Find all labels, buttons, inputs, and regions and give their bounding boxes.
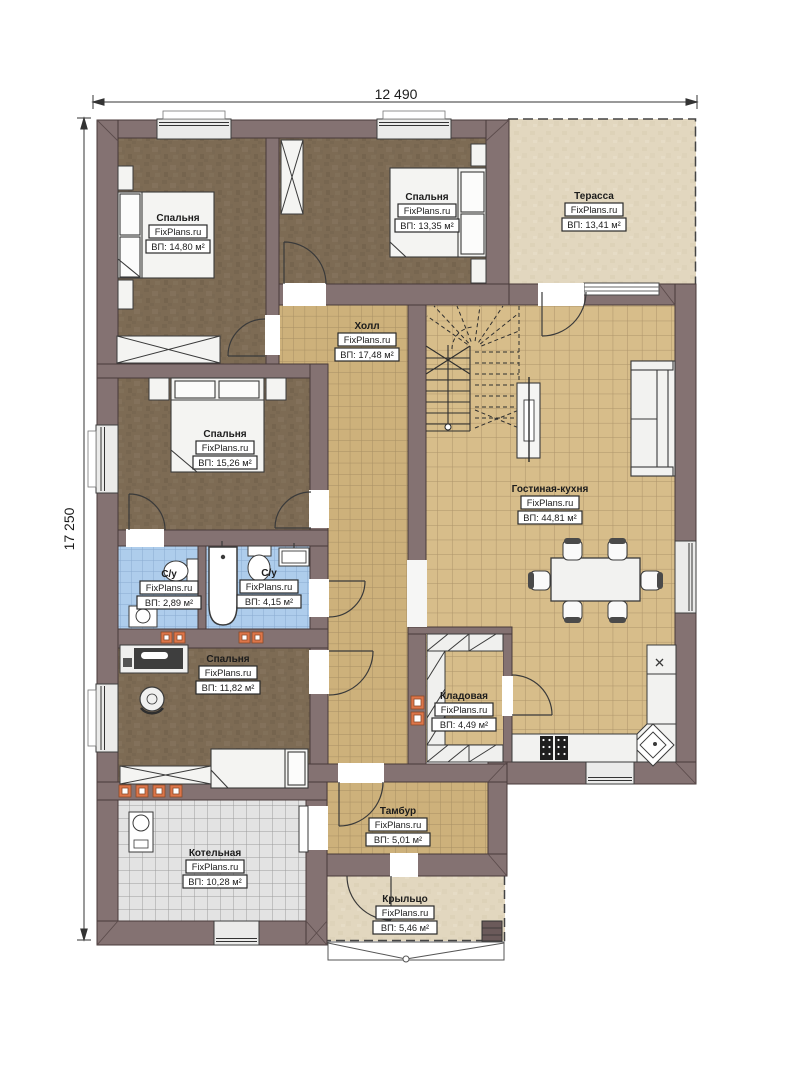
svg-text:17 250: 17 250	[61, 507, 77, 550]
svg-text:FixPlans.ru: FixPlans.ru	[441, 705, 488, 715]
svg-text:FixPlans.ru: FixPlans.ru	[202, 443, 249, 453]
svg-text:Кладовая: Кладовая	[440, 691, 488, 702]
svg-text:Терасса: Терасса	[574, 191, 614, 202]
svg-text:ВП: 13,41 м²: ВП: 13,41 м²	[567, 220, 620, 230]
svg-text:ВП: 4,49 м²: ВП: 4,49 м²	[440, 720, 488, 730]
svg-text:ВП: 15,26 м²: ВП: 15,26 м²	[198, 458, 251, 468]
svg-text:ВП: 44,81 м²: ВП: 44,81 м²	[523, 513, 576, 523]
svg-text:Крыльцо: Крыльцо	[382, 894, 428, 905]
svg-text:FixPlans.ru: FixPlans.ru	[246, 582, 293, 592]
svg-text:FixPlans.ru: FixPlans.ru	[375, 820, 422, 830]
svg-text:Спальня: Спальня	[156, 213, 199, 224]
svg-text:Тамбур: Тамбур	[380, 805, 416, 817]
svg-text:ВП: 4,15 м²: ВП: 4,15 м²	[245, 597, 293, 607]
svg-text:FixPlans.ru: FixPlans.ru	[382, 908, 429, 918]
svg-text:С/у: С/у	[261, 568, 277, 579]
svg-text:FixPlans.ru: FixPlans.ru	[155, 227, 202, 237]
svg-text:FixPlans.ru: FixPlans.ru	[344, 335, 391, 345]
svg-text:ВП: 17,48 м²: ВП: 17,48 м²	[340, 350, 393, 360]
svg-text:Гостиная-кухня: Гостиная-кухня	[512, 484, 589, 495]
svg-text:ВП: 11,82 м²: ВП: 11,82 м²	[202, 683, 255, 693]
svg-text:FixPlans.ru: FixPlans.ru	[146, 583, 193, 593]
svg-text:FixPlans.ru: FixPlans.ru	[205, 668, 252, 678]
svg-text:Спальня: Спальня	[405, 192, 448, 203]
svg-text:Спальня: Спальня	[203, 429, 246, 440]
svg-text:Спальня: Спальня	[206, 654, 249, 665]
svg-text:ВП: 14,80 м²: ВП: 14,80 м²	[151, 242, 204, 252]
svg-text:12 490: 12 490	[375, 86, 418, 102]
svg-text:Котельная: Котельная	[189, 848, 242, 859]
svg-text:FixPlans.ru: FixPlans.ru	[192, 862, 239, 872]
svg-text:FixPlans.ru: FixPlans.ru	[527, 498, 574, 508]
svg-text:FixPlans.ru: FixPlans.ru	[404, 206, 451, 216]
svg-text:С/у: С/у	[161, 569, 177, 580]
svg-text:ВП: 2,89 м²: ВП: 2,89 м²	[145, 598, 193, 608]
svg-text:ВП: 5,46 м²: ВП: 5,46 м²	[381, 923, 429, 933]
svg-text:ВП: 10,28 м²: ВП: 10,28 м²	[188, 877, 241, 887]
svg-text:FixPlans.ru: FixPlans.ru	[571, 205, 618, 215]
svg-text:ВП: 5,01 м²: ВП: 5,01 м²	[374, 835, 422, 845]
svg-text:Холл: Холл	[354, 321, 379, 332]
svg-text:ВП: 13,35 м²: ВП: 13,35 м²	[400, 221, 453, 231]
